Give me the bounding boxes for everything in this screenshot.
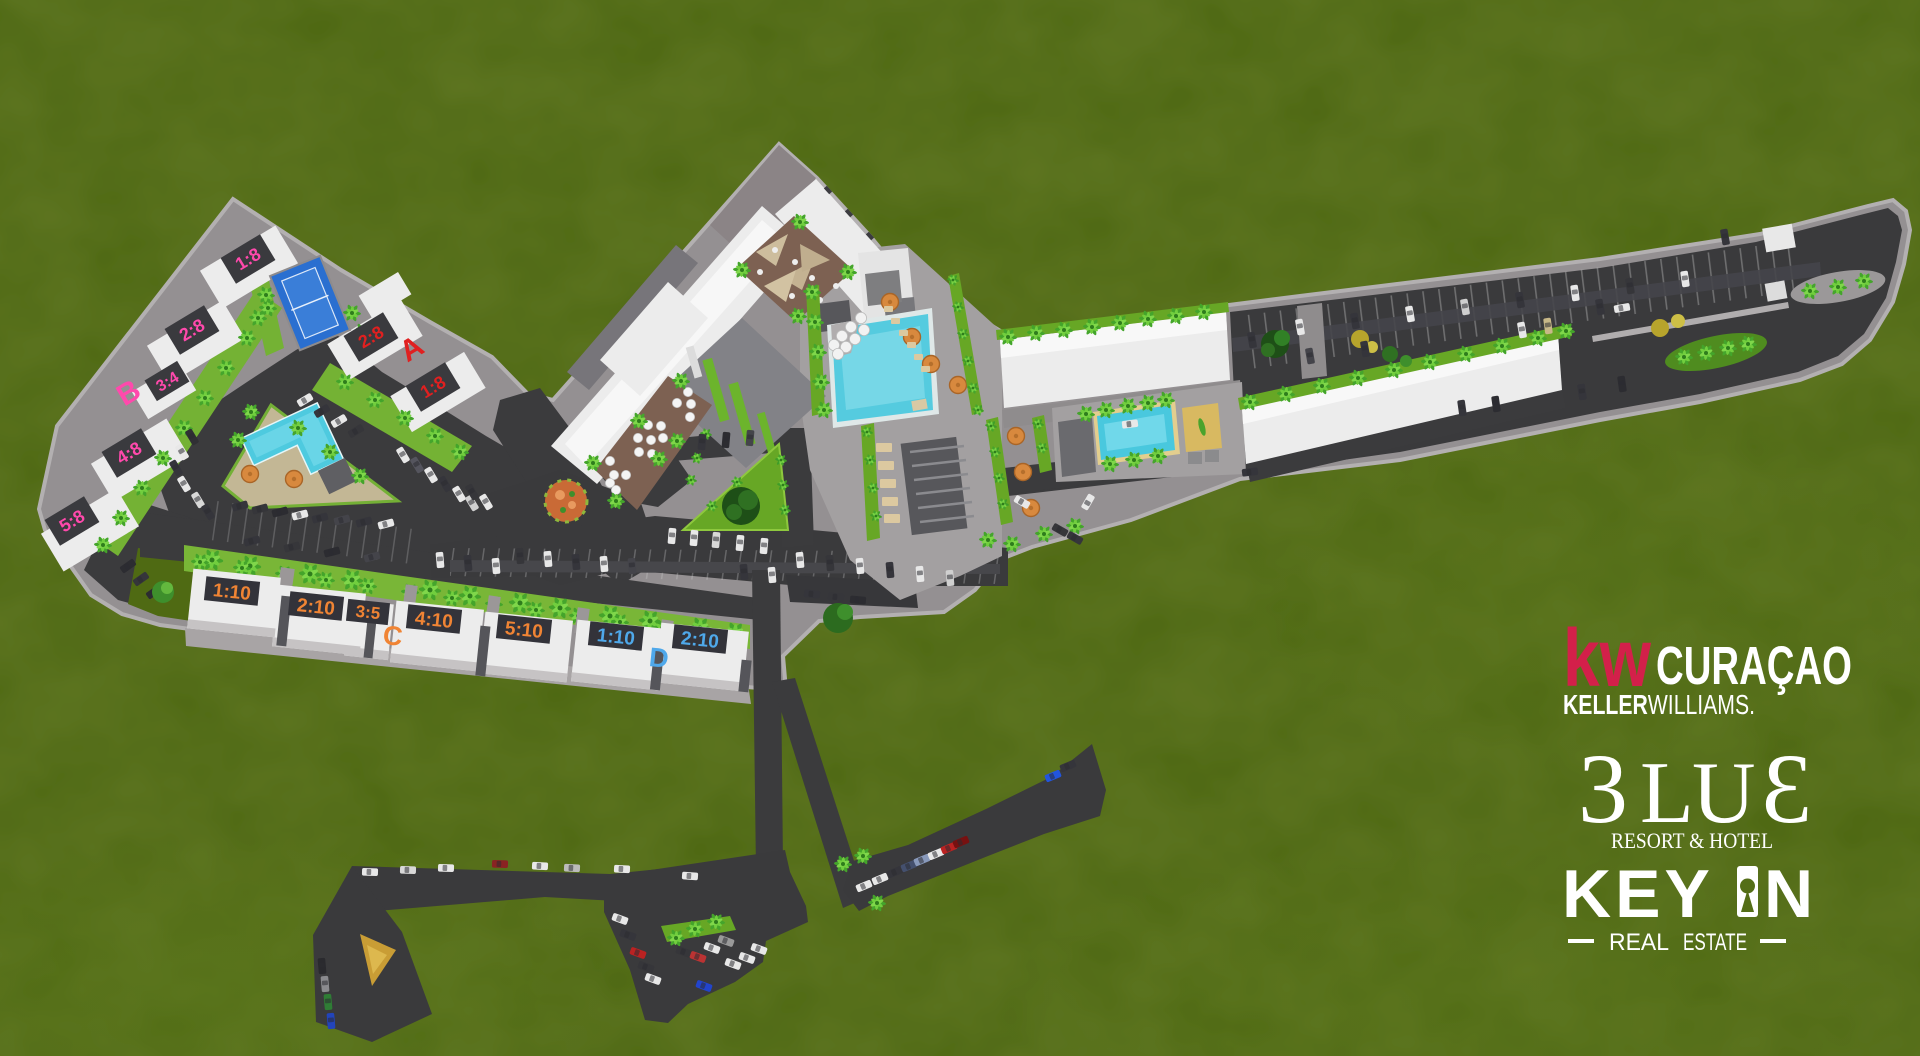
svg-text:1:10: 1:10 xyxy=(596,625,636,650)
svg-text:ESTATE: ESTATE xyxy=(1683,929,1747,956)
svg-text:CURAÇAO: CURAÇAO xyxy=(1656,636,1852,696)
svg-text:5:10: 5:10 xyxy=(504,618,544,643)
svg-text:3:5: 3:5 xyxy=(355,602,381,623)
svg-text:KEY: KEY xyxy=(1562,856,1714,932)
svg-text:C: C xyxy=(382,620,405,652)
svg-text:2:10: 2:10 xyxy=(296,595,336,620)
svg-text:D: D xyxy=(648,642,671,674)
svg-text:RESORT & HOTEL: RESORT & HOTEL xyxy=(1611,828,1773,853)
svg-text:REAL: REAL xyxy=(1609,929,1669,956)
svg-text:N: N xyxy=(1764,856,1813,932)
svg-text:KELLERWILLIAMS.: KELLERWILLIAMS. xyxy=(1563,689,1755,720)
svg-text:2:10: 2:10 xyxy=(680,628,720,653)
svg-text:1:10: 1:10 xyxy=(212,580,252,605)
svg-text:4:10: 4:10 xyxy=(414,608,454,633)
